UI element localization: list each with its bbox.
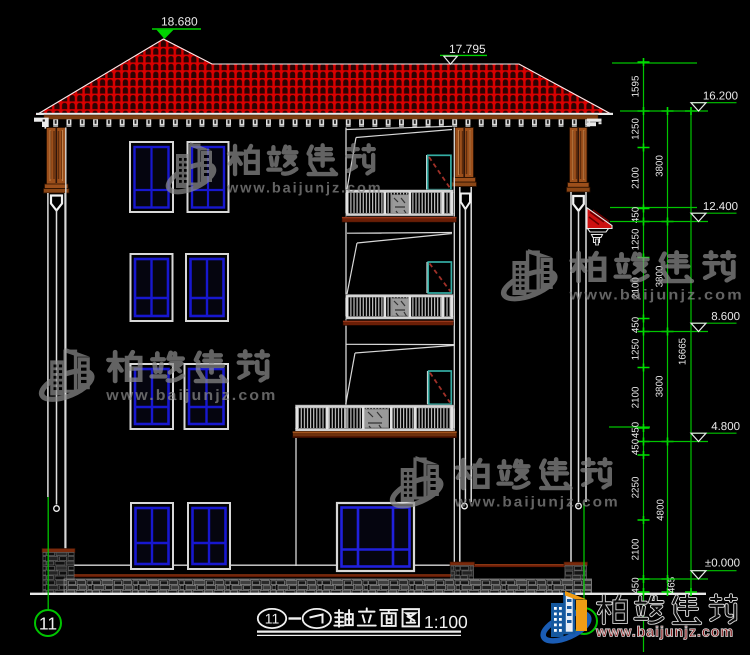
svg-text:8.600: 8.600 xyxy=(711,311,740,323)
svg-text:16665: 16665 xyxy=(678,337,689,365)
svg-text:4800: 4800 xyxy=(656,499,667,521)
svg-text:450: 450 xyxy=(631,421,642,438)
svg-text:450: 450 xyxy=(631,438,642,455)
svg-text:±0.000: ±0.000 xyxy=(705,558,740,570)
svg-text:12.400: 12.400 xyxy=(703,201,738,213)
svg-text:2100: 2100 xyxy=(631,538,642,560)
svg-text:2250: 2250 xyxy=(631,476,642,498)
svg-text:1250: 1250 xyxy=(631,118,642,140)
svg-text:450: 450 xyxy=(631,316,642,333)
svg-text:4.800: 4.800 xyxy=(711,421,740,433)
svg-text:1:100: 1:100 xyxy=(424,612,468,632)
svg-text:16.200: 16.200 xyxy=(703,91,738,103)
svg-text:2100: 2100 xyxy=(631,386,642,408)
svg-text:1250: 1250 xyxy=(631,338,642,360)
svg-text:2100: 2100 xyxy=(631,167,642,189)
svg-text:450: 450 xyxy=(631,206,642,223)
svg-text:18.680: 18.680 xyxy=(161,15,198,29)
svg-text:11: 11 xyxy=(265,611,280,627)
svg-text:450: 450 xyxy=(631,577,642,594)
svg-text:1250: 1250 xyxy=(631,228,642,250)
svg-text:17.795: 17.795 xyxy=(449,42,486,56)
svg-text:11: 11 xyxy=(39,614,57,634)
svg-text:3800: 3800 xyxy=(655,155,666,177)
svg-text:1595: 1595 xyxy=(631,75,642,97)
svg-text:www.baijunjz.com: www.baijunjz.com xyxy=(595,625,734,641)
svg-text:3800: 3800 xyxy=(655,375,666,397)
